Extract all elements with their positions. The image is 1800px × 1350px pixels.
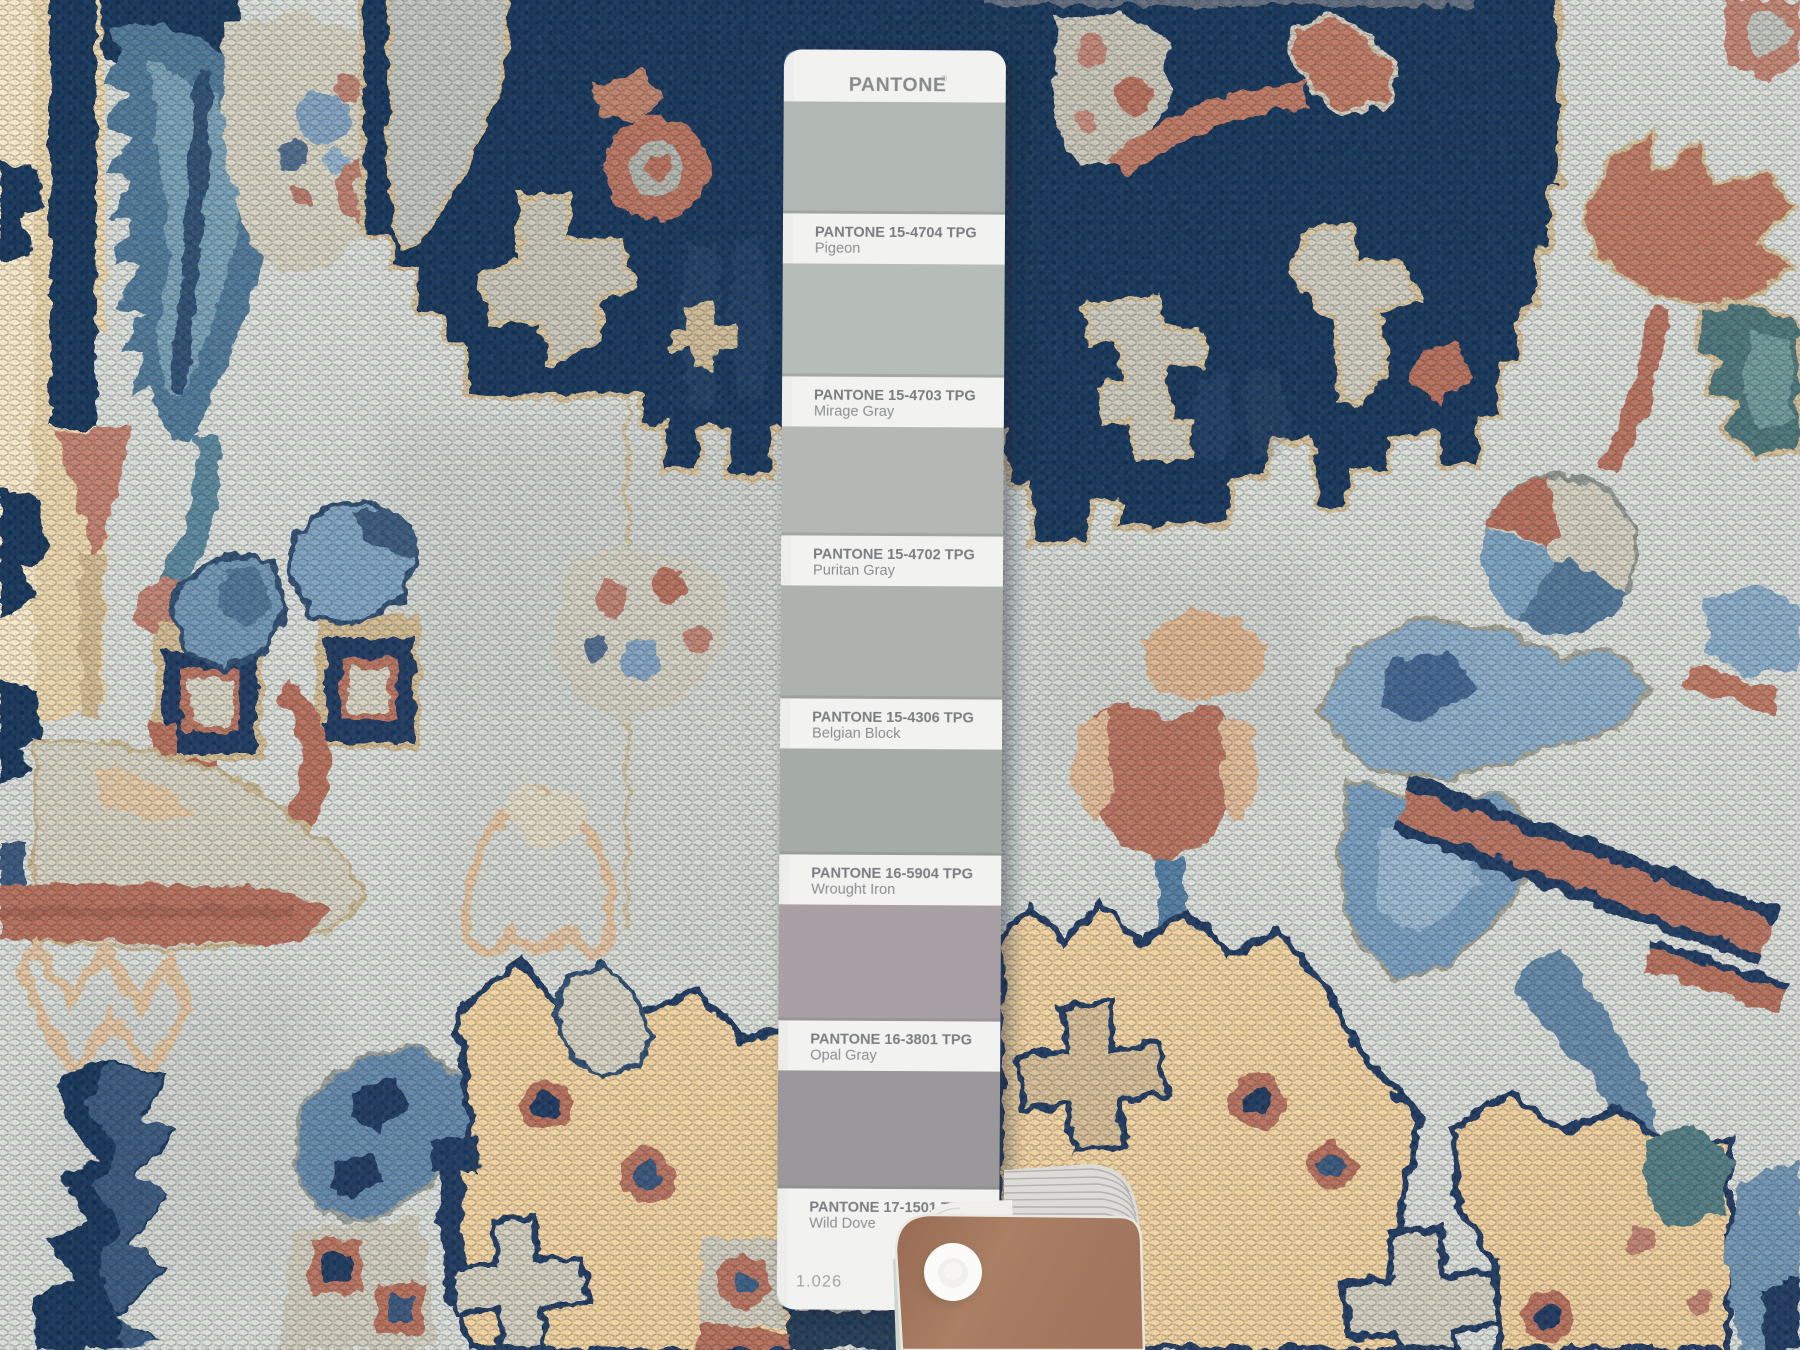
svg-text:Wrought Iron: Wrought Iron	[811, 882, 895, 898]
svg-text:Puritan Gray: Puritan Gray	[813, 563, 896, 579]
svg-text:PANTONE 16-5904 TPG: PANTONE 16-5904 TPG	[811, 866, 973, 883]
svg-text:®: ®	[941, 74, 947, 83]
svg-text:Belgian Block: Belgian Block	[812, 726, 901, 743]
svg-text:Wild Dove: Wild Dove	[809, 1216, 876, 1232]
svg-text:PANTONE 15-4306 TPG: PANTONE 15-4306 TPG	[812, 710, 974, 727]
svg-text:PANTONE 15-4704 TPG: PANTONE 15-4704 TPG	[815, 225, 977, 242]
svg-text:Opal Gray: Opal Gray	[810, 1048, 877, 1064]
svg-text:PANTONE 15-4703 TPG: PANTONE 15-4703 TPG	[814, 388, 976, 405]
svg-text:PANTONE 15-4702 TPG: PANTONE 15-4702 TPG	[813, 547, 975, 564]
svg-text:Pigeon: Pigeon	[815, 241, 861, 257]
svg-text:PANTONE: PANTONE	[849, 74, 947, 97]
svg-text:PANTONE 16-3801 TPG: PANTONE 16-3801 TPG	[810, 1032, 972, 1049]
svg-text:Mirage Gray: Mirage Gray	[814, 404, 895, 420]
svg-text:1.026: 1.026	[796, 1272, 842, 1290]
